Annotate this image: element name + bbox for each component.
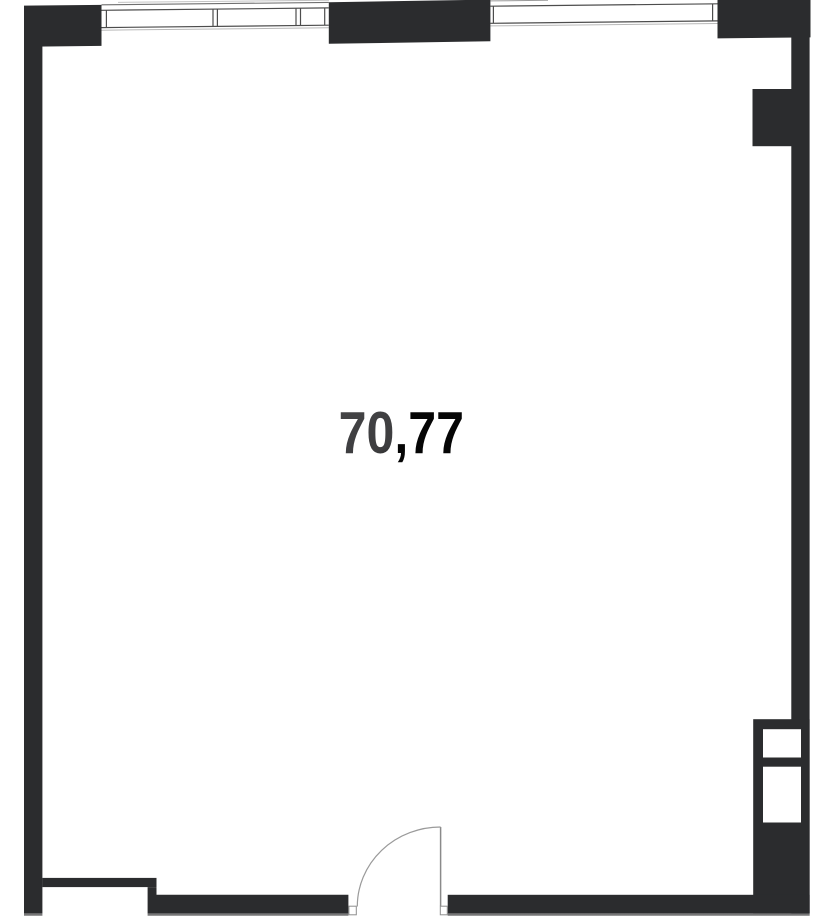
svg-text:70,77: 70,77 <box>339 399 464 466</box>
